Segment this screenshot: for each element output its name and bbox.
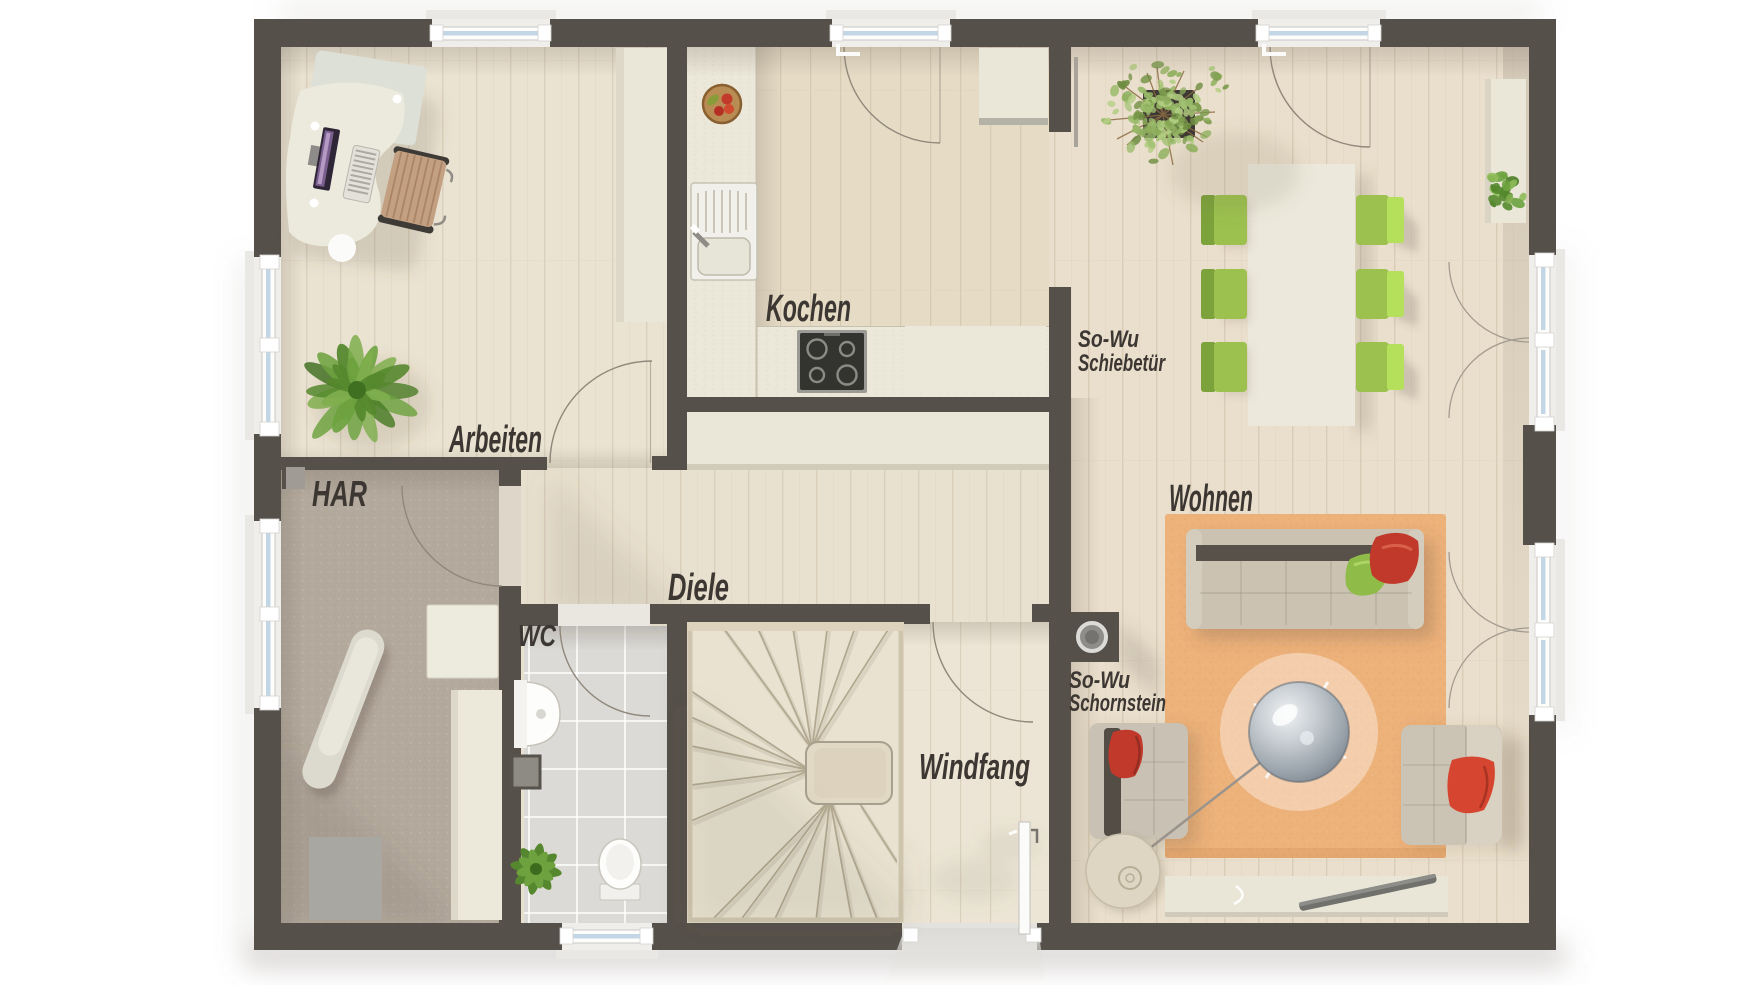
svg-text:Wohnen: Wohnen	[1169, 478, 1253, 520]
svg-text:Arbeiten: Arbeiten	[448, 419, 542, 461]
svg-text:Schornstein: Schornstein	[1069, 690, 1166, 717]
svg-text:Windfang: Windfang	[919, 746, 1030, 787]
svg-text:Diele: Diele	[668, 567, 729, 609]
svg-text:HAR: HAR	[312, 473, 367, 514]
svg-text:WC: WC	[518, 618, 556, 653]
svg-text:So-Wu: So-Wu	[1078, 326, 1139, 353]
svg-text:Kochen: Kochen	[766, 288, 851, 330]
svg-text:Schiebetür: Schiebetür	[1078, 350, 1166, 377]
